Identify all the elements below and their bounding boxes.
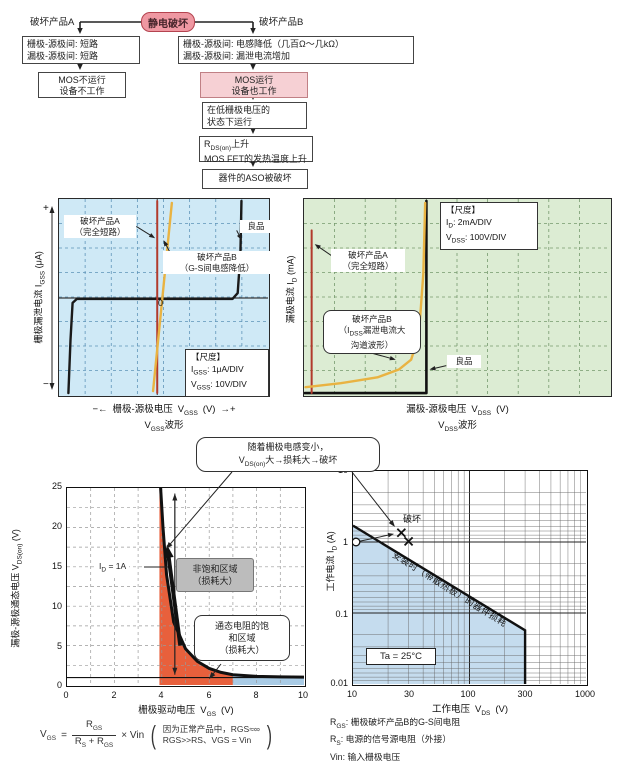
flow-box-b-damage: 栅极-源极间: 电感降低（几百Ω～几kΩ） 漏极-源极间: 漏泄电流增加 xyxy=(178,36,414,64)
gss-plus-mark: + xyxy=(43,203,49,214)
gss-scale-line1: IGSS: 1μA/DIV xyxy=(191,364,263,379)
dss-scale-title: 【尺度】 xyxy=(446,205,532,217)
soa-x-tick-100: 100 xyxy=(453,689,483,699)
flow-box-a-damage-line2: 漏极-源极间: 短路 xyxy=(27,51,135,63)
rdson-rest: 上升 xyxy=(231,139,249,149)
gss-product-a-line1: 破坏产品A xyxy=(67,216,133,227)
soa-y-sym: I xyxy=(326,550,336,553)
flow-box-low-gate-voltage-line2: 状态下运行 xyxy=(207,117,302,129)
soa-broken-label: 破坏 xyxy=(403,512,421,525)
soa-x-tick-10: 10 xyxy=(337,689,367,699)
flow-box-a-result-line2: 设备不工作 xyxy=(43,86,121,97)
flow-box-a-damage: 栅极-源极间: 短路 漏极-源极间: 短路 xyxy=(22,36,140,64)
gss-x-right-arrow: →+ xyxy=(220,404,235,415)
bl-id-condition-label: ID = 1A xyxy=(96,560,129,577)
dss-y-sym: I xyxy=(286,282,296,285)
rdson-subscript: DS(on) xyxy=(211,145,232,152)
bl-x-tick-2: 2 xyxy=(104,690,124,700)
gss-good-label: 良品 xyxy=(240,220,272,233)
gss-product-b-line1: 破坏产品B xyxy=(166,252,268,263)
formula-note: 因为正常产品中，RGS≈∞ RGS>>RS、VGS = Vin xyxy=(163,724,260,746)
bl-nonsat-line2: （损耗大） xyxy=(180,575,250,587)
legend-vin-rest: : 输入栅极电压 xyxy=(343,752,401,762)
bl-sat-line3: （损耗大） xyxy=(199,644,285,656)
dss-x-unit: (V) xyxy=(496,404,509,415)
gss-scale1-rest: : 1μA/DIV xyxy=(207,364,244,374)
soa-temperature-label: Ta = 25°C xyxy=(366,648,436,665)
soa-y-sub: D xyxy=(331,546,338,551)
dss-product-a-line1: 破坏产品A xyxy=(334,250,402,261)
bl-y-tick-10: 10 xyxy=(44,601,62,611)
flow-box-a-damage-line1: 栅极-源极间: 短路 xyxy=(27,39,135,51)
gss-product-a-label: 破坏产品A （完全短路） xyxy=(64,215,136,238)
gss-scale1-sub: GSS xyxy=(193,369,207,376)
dss-scale2-rest: : 100V/DIV xyxy=(465,232,506,242)
legend-rs: RS: 电源的信号源电阻（外接） xyxy=(330,733,460,750)
bl-sat-line1: 通态电阻的饱 xyxy=(199,620,285,632)
bl-x-sub: GS xyxy=(207,711,216,718)
soa-y-tick-001: 0.01 xyxy=(324,678,348,688)
dss-b-pre: （I xyxy=(339,325,350,335)
flow-box-a-result: MOS不运行 设备不工作 xyxy=(38,72,126,98)
dss-good-label: 良品 xyxy=(447,355,481,368)
callout-line1: 随着栅极电感变小， xyxy=(203,441,373,454)
flow-box-rdson-rise-line2: MOS FET的发热温度上升 xyxy=(204,154,308,166)
formula-note-line1: 因为正常产品中，RGS≈∞ xyxy=(163,724,260,735)
soa-x-axis-title: 工作电压 VDS (V) xyxy=(352,701,588,717)
flow-box-b-runs-line1: MOS运行 xyxy=(205,75,303,86)
gss-y-axis-title: 栅极漏泄电流 IGSS (μA) xyxy=(32,202,47,392)
dss-y-text: 漏极电流 xyxy=(286,287,296,323)
gss-scale-box: 【尺度】 IGSS: 1μA/DIV VGSS: 10V/DIV xyxy=(185,349,269,397)
dss-y-unit: (mA) xyxy=(286,256,296,276)
formula-lhs-sym: V xyxy=(40,729,47,740)
gss-minus-mark: − xyxy=(43,379,49,390)
formula-numerator: RGS xyxy=(86,719,102,735)
flow-box-b-damage-line2: 漏极-源极间: 漏泄电流增加 xyxy=(183,51,409,63)
bl-x-tick-6: 6 xyxy=(199,690,219,700)
formula-den-sub2: GS xyxy=(104,742,113,749)
bl-y-axis-title: 漏极-源极通态电压 VDS(on) (V) xyxy=(9,488,24,688)
formula-fraction: RGS RS + RGS xyxy=(72,719,116,752)
legend-vin: Vin: 输入栅极电压 xyxy=(330,751,460,763)
bl-x-tick-0: 0 xyxy=(56,690,76,700)
gss-product-b-label: 破坏产品B （G-S间电感降低） xyxy=(163,251,271,274)
dss-product-b-label: 破坏产品B （IDSS漏泄电流大 沟道波形） xyxy=(323,310,421,354)
soa-x-tick-1000: 1000 xyxy=(570,689,600,699)
vgs-formula: VGS = RGS RS + RGS × Vin ( 因为正常产品中，RGS≈∞… xyxy=(40,719,274,752)
gss-scale2-rest: : 10V/DIV xyxy=(210,379,246,389)
soa-x-symbol: VDS xyxy=(475,704,490,717)
soa-legend: RGS: 栅极破坏产品B的G-S间电阻 RS: 电源的信号源电阻（外接） Vin… xyxy=(330,716,460,763)
gss-product-a-line2: （完全短路） xyxy=(67,227,133,238)
legend-rs-rest: : 电源的信号源电阻（外接） xyxy=(341,734,451,744)
bl-saturation-label: 通态电阻的饱 和区域 （损耗大） xyxy=(194,615,290,661)
bl-x-text: 栅极驱动电压 xyxy=(138,702,195,716)
gss-x-sub: GSS xyxy=(184,410,198,417)
gss-x-axis-title: −← 栅极-源极电压 VGSS (V) →+ xyxy=(58,401,270,417)
formula-mult: × Vin xyxy=(121,730,144,741)
dss-x-axis-title: 漏极-源极电压 VDSS (V) xyxy=(303,401,612,417)
dss-product-b-line3: 沟道波形） xyxy=(326,340,418,351)
bl-sat-line2: 和区域 xyxy=(199,632,285,644)
gss-x-left-arrow: −← xyxy=(92,404,107,415)
gss-scale2-sub: GSS xyxy=(197,384,211,391)
dss-scale2-sub: DSS xyxy=(452,237,465,244)
bl-x-tick-10: 10 xyxy=(293,690,313,700)
bl-nonsat-line1: 非饱和区域 xyxy=(180,563,250,575)
dss-product-a-line2: （完全短路） xyxy=(334,261,402,272)
dss-x-text: 漏极-源极电压 xyxy=(406,401,466,415)
gss-wave-sub: GSS xyxy=(151,426,165,433)
gss-product-b-line2: （G-S间电感降低） xyxy=(166,263,268,274)
dss-scale-line1: ID: 2mA/DIV xyxy=(446,217,532,232)
gss-wave-symbol: VGSS波形 xyxy=(144,417,183,433)
legend-rgs-sub: GS xyxy=(336,723,345,730)
formula-note-line2: RGS>>RS、VGS = Vin xyxy=(163,735,260,746)
dss-b-sub: DSS xyxy=(349,330,362,337)
formula-paren-right: ) xyxy=(267,722,272,748)
gss-scale-title: 【尺度】 xyxy=(191,352,263,364)
bl-y-text: 漏极-源极通态电压 xyxy=(11,573,21,648)
flow-box-aso-destroyed: 器件的ASO被破坏 xyxy=(202,169,308,189)
flow-box-rdson-rise: RDS(on)上升 MOS FET的发热温度上升 xyxy=(199,136,313,162)
legend-rgs: RGS: 栅极破坏产品B的G-S间电阻 xyxy=(330,716,460,733)
legend-vin-sym: Vin xyxy=(330,752,343,762)
bl-y-tick-0: 0 xyxy=(44,680,62,690)
flow-box-b-runs-line2: 设备也工作 xyxy=(205,86,303,97)
dss-product-b-line1: 破坏产品B xyxy=(326,314,418,325)
soa-x-sub: DS xyxy=(481,710,490,717)
bl-y-sym: V xyxy=(11,564,21,570)
dss-x-symbol: VDSS xyxy=(471,404,491,417)
dss-x-sub: DSS xyxy=(478,410,491,417)
flow-box-low-gate-voltage-line1: 在低栅极电压的 xyxy=(207,105,302,117)
soa-y-unit: (A) xyxy=(326,531,336,543)
dss-product-a-label: 破坏产品A （完全短路） xyxy=(331,249,405,272)
dss-y-axis-title: 漏极电流 ID (mA) xyxy=(284,214,299,364)
flow-box-b-runs: MOS运行 设备也工作 xyxy=(200,72,308,98)
dss-scale1-rest: : 2mA/DIV xyxy=(453,217,492,227)
dss-b-rest: 漏泄电流大 xyxy=(363,325,406,335)
soa-x-unit: (V) xyxy=(495,704,508,715)
callout-line2: VDS(on)大→损耗大→破坏 xyxy=(203,454,373,471)
bl-x-axis-title: 栅极驱动电压 VGS (V) xyxy=(66,702,306,718)
flow-box-b-damage-line1: 栅极-源极间: 电感降低（几百Ω～几kΩ） xyxy=(183,39,409,51)
callout-bubble: 随着栅极电感变小， VDS(on)大→损耗大→破坏 xyxy=(196,437,380,472)
gss-y-sub: GSS xyxy=(39,271,46,285)
dss-waveform-caption: VDSS波形 xyxy=(303,417,612,433)
gss-x-symbol: VGSS xyxy=(178,404,198,417)
bl-x-unit: (V) xyxy=(221,705,234,716)
formula-paren-left: ( xyxy=(151,722,156,748)
gss-y-unit: (μA) xyxy=(34,251,44,268)
esd-title-box: 静电破坏 xyxy=(141,12,195,32)
dss-wave-rest: 波形 xyxy=(458,420,477,431)
gss-scale-line2: VGSS: 10V/DIV xyxy=(191,379,263,394)
gss-waveform-caption: VGSS波形 xyxy=(58,417,270,433)
callout-rest: 大→损耗大→破坏 xyxy=(265,455,337,465)
callout-sub: DS(on) xyxy=(245,460,266,467)
formula-lhs: VGS xyxy=(40,729,56,742)
bl-x-tick-8: 8 xyxy=(246,690,266,700)
formula-num-sub: GS xyxy=(93,725,102,732)
formula-equals: = xyxy=(61,730,67,741)
soa-x-tick-300: 300 xyxy=(510,689,540,699)
product-b-branch-label: 破坏产品B xyxy=(259,14,303,28)
formula-num-sym: R xyxy=(86,719,93,730)
formula-lhs-sub: GS xyxy=(47,735,56,742)
gss-zero-label: 0 xyxy=(158,298,163,308)
soa-y-axis-title: 工作电流 ID (A) xyxy=(324,496,339,626)
flow-box-a-result-line1: MOS不运行 xyxy=(43,75,121,86)
bl-y-tick-15: 15 xyxy=(44,561,62,571)
bl-nonsaturation-label: 非饱和区域 （损耗大） xyxy=(176,558,254,592)
bl-x-tick-4: 4 xyxy=(151,690,171,700)
gss-y-sym: I xyxy=(34,285,44,288)
bl-y-sub: DS(on) xyxy=(16,544,23,565)
formula-den2: + R xyxy=(86,736,104,747)
bl-y-unit: (V) xyxy=(11,529,21,541)
soa-x-text: 工作电压 xyxy=(432,701,470,715)
dss-scale-line2: VDSS: 100V/DIV xyxy=(446,232,532,247)
dss-y-sub: D xyxy=(291,278,298,283)
gss-y-text: 栅极漏泄电流 xyxy=(34,290,44,344)
gss-wave-rest: 波形 xyxy=(165,420,184,431)
formula-denominator: RS + RGS xyxy=(72,735,116,752)
bl-y-tick-25: 25 xyxy=(44,481,62,491)
bl-id-rest: = 1A xyxy=(106,561,126,571)
dss-scale-box: 【尺度】 ID: 2mA/DIV VDSS: 100V/DIV xyxy=(440,202,538,250)
dss-wave-sub: DSS xyxy=(444,426,457,433)
bl-x-symbol: VGS xyxy=(200,705,216,718)
flow-box-rdson-rise-line1: RDS(on)上升 xyxy=(204,139,308,154)
page: 破坏产品A 静电破坏 破坏产品B 栅极-源极间: 短路 漏极-源极间: 短路 M… xyxy=(0,0,617,763)
dss-wave-symbol: VDSS波形 xyxy=(438,417,477,433)
formula-den1: R xyxy=(75,736,82,747)
legend-rgs-rest: : 栅极破坏产品B的G-S间电阻 xyxy=(346,717,460,727)
flow-box-low-gate-voltage: 在低栅极电压的 状态下运行 xyxy=(202,102,307,129)
dss-product-b-line2: （IDSS漏泄电流大 xyxy=(326,325,418,340)
soa-y-text: 工作电流 xyxy=(326,556,336,592)
product-a-branch-label: 破坏产品A xyxy=(30,14,74,28)
soa-x-tick-30: 30 xyxy=(394,689,424,699)
gss-x-unit: (V) xyxy=(203,404,216,415)
gss-x-text: 栅极-源极电压 xyxy=(113,401,173,415)
bl-y-tick-5: 5 xyxy=(44,641,62,651)
bl-y-tick-20: 20 xyxy=(44,521,62,531)
